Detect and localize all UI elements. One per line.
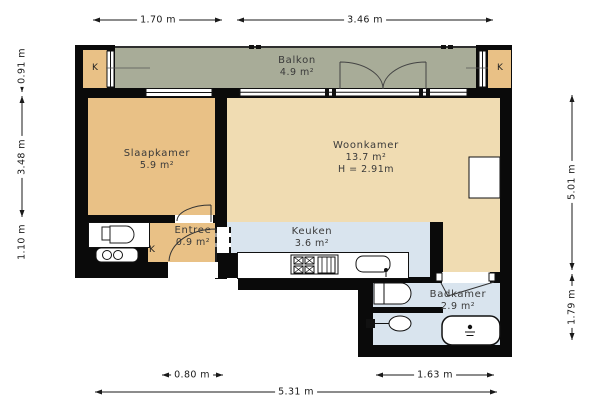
opening-badkamer-door (442, 272, 490, 283)
room-name: Woonkamer (333, 140, 399, 152)
closet-label-left: K (92, 63, 98, 73)
room-area: 0.9 m² (175, 237, 212, 249)
room-label-keuken: Keuken 3.6 m² (292, 226, 333, 250)
closet-label-right: K (497, 63, 503, 73)
kitchen-counter (237, 252, 409, 279)
floorplan: Balkon 4.9 m² Slaapkamer 5.9 m² Woonkame… (0, 0, 600, 400)
room-label-balkon: Balkon 4.9 m² (278, 55, 316, 79)
closet-label-entree: K (149, 245, 155, 255)
room-area: 3.6 m² (292, 238, 333, 250)
dim-left-3: 1.10 m (17, 221, 28, 263)
room-name: Slaapkamer (124, 148, 190, 160)
wall-wc-meter-block (88, 246, 148, 262)
room-name: Keuken (292, 226, 333, 238)
dim-left-2: 3.48 m (17, 136, 28, 178)
wc-room (88, 222, 150, 248)
dim-bottom-2: 1.63 m (414, 370, 456, 381)
room-name: Badkamer (430, 289, 487, 301)
room-label-woonkamer: Woonkamer 13.7 m² H = 2.91m (333, 140, 399, 176)
room-label-badkamer: Badkamer 2.9 m² (430, 289, 487, 313)
wall-balcony-facade (88, 88, 500, 98)
room-name: Entree (175, 225, 212, 237)
dim-bottom-1: 0.80 m (171, 370, 213, 381)
room-area: 13.7 m² (333, 152, 399, 164)
room-height: H = 2.91m (333, 164, 399, 176)
wall-bottom-right (358, 345, 512, 357)
opening-slaapkamer-door (175, 215, 213, 223)
room-label-entree: Entree 0.9 m² (175, 225, 212, 249)
dim-bottom-3: 5.31 m (275, 387, 317, 398)
room-label-slaapkamer: Slaapkamer 5.9 m² (124, 148, 190, 172)
room-area: 4.9 m² (278, 67, 316, 79)
dim-right-1: 5.01 m (567, 161, 578, 203)
passage-entree-keuken (215, 227, 231, 253)
room-name: Balkon (278, 55, 316, 67)
opening-front-door (168, 262, 218, 278)
room-area: 2.9 m² (430, 301, 487, 313)
dim-top-2: 3.46 m (344, 15, 386, 26)
room-area: 5.9 m² (124, 160, 190, 172)
dim-top-1: 1.70 m (137, 15, 179, 26)
dim-right-2: 1.79 m (567, 286, 578, 328)
wall-badkamer-west (358, 277, 373, 345)
dim-left-1: 0.91 m (17, 45, 28, 87)
